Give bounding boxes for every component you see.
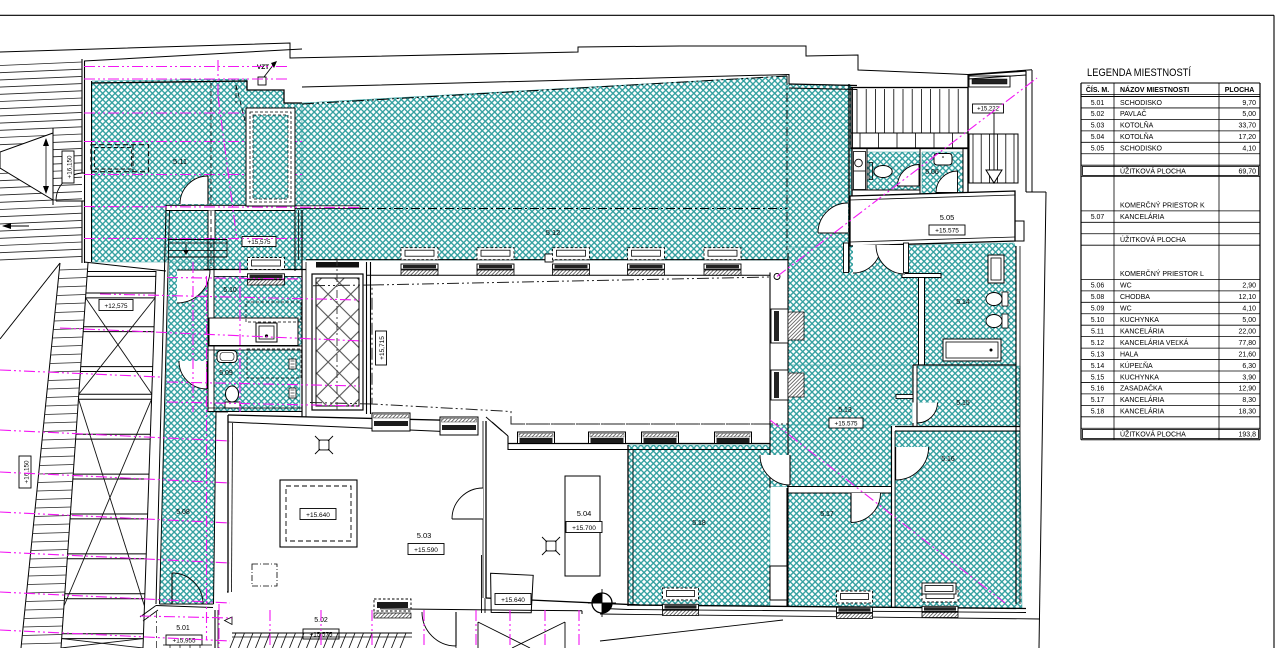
svg-text:5.16: 5.16	[1091, 386, 1105, 393]
svg-text:5.14: 5.14	[956, 299, 970, 306]
svg-text:5.05: 5.05	[1091, 146, 1105, 153]
svg-text:12,10: 12,10	[1238, 294, 1256, 301]
svg-text:KOMERČNÝ PRIESTOR K: KOMERČNÝ PRIESTOR K	[1120, 201, 1205, 210]
svg-text:+12,575: +12,575	[105, 303, 128, 310]
svg-text:+15,222: +15,222	[977, 106, 1000, 112]
svg-text:12,90: 12,90	[1238, 386, 1256, 393]
svg-text:193,8: 193,8	[1238, 432, 1256, 439]
svg-text:5.11: 5.11	[1091, 328, 1104, 335]
svg-text:ZASADAČKA: ZASADAČKA	[1120, 384, 1163, 393]
svg-text:+15.590: +15.590	[414, 547, 438, 554]
svg-text:+16,150: +16,150	[66, 155, 73, 178]
svg-text:+16,150: +16,150	[23, 460, 30, 483]
svg-text:+15.575: +15.575	[835, 420, 858, 427]
svg-text:+15.640: +15.640	[501, 597, 525, 604]
svg-text:LEGENDA MIESTNOSTÍ: LEGENDA MIESTNOSTÍ	[1087, 66, 1192, 79]
svg-text:3,90: 3,90	[1242, 374, 1256, 381]
svg-text:NÁZOV MIESTNOSTI: NÁZOV MIESTNOSTI	[1120, 85, 1189, 94]
svg-text:5.06: 5.06	[1091, 283, 1105, 290]
svg-text:5.14: 5.14	[1091, 363, 1105, 370]
svg-text:8,30: 8,30	[1242, 397, 1256, 404]
svg-text:ÚŽITKOVÁ PLOCHA: ÚŽITKOVÁ PLOCHA	[1120, 235, 1186, 244]
svg-text:+15.640: +15.640	[306, 512, 330, 519]
svg-text:HALA: HALA	[1120, 351, 1139, 358]
svg-text:5.13: 5.13	[838, 407, 852, 414]
svg-text:+15,715: +15,715	[379, 336, 386, 360]
svg-text:KÚPEĽŇA: KÚPEĽŇA	[1120, 361, 1153, 370]
svg-text:SCHODISKO: SCHODISKO	[1120, 100, 1163, 107]
svg-text:5.12: 5.12	[1091, 340, 1105, 347]
svg-text:5.17: 5.17	[820, 511, 834, 518]
svg-text:KANCELÁRIA: KANCELÁRIA	[1120, 407, 1165, 416]
svg-text:5.18: 5.18	[1091, 409, 1105, 416]
svg-text:5.18: 5.18	[692, 520, 706, 527]
svg-text:5.15: 5.15	[956, 400, 970, 407]
svg-text:5.02: 5.02	[1091, 111, 1105, 118]
svg-text:+15,575: +15,575	[248, 239, 271, 246]
svg-text:VZT: VZT	[257, 64, 269, 71]
svg-text:KUCHYNKA: KUCHYNKA	[1120, 317, 1159, 324]
svg-text:5.10: 5.10	[1091, 317, 1105, 324]
svg-text:CHODBA: CHODBA	[1120, 294, 1150, 301]
svg-text:5.16: 5.16	[941, 456, 955, 463]
svg-text:KOTOLŇA: KOTOLŇA	[1120, 121, 1154, 130]
svg-text:ČÍS. M.: ČÍS. M.	[1086, 85, 1109, 94]
svg-text:KANCELÁRIA: KANCELÁRIA	[1120, 326, 1165, 335]
svg-text:5.12: 5.12	[546, 228, 561, 237]
svg-text:5,00: 5,00	[1242, 111, 1256, 118]
svg-text:5.08: 5.08	[1091, 294, 1105, 301]
svg-text:77,80: 77,80	[1238, 340, 1256, 347]
svg-text:KANCELÁRIA: KANCELÁRIA	[1120, 395, 1165, 404]
svg-text:5.10: 5.10	[223, 287, 237, 294]
svg-text:+15.575: +15.575	[935, 227, 959, 234]
svg-text:2,90: 2,90	[1242, 283, 1256, 290]
svg-text:21,60: 21,60	[1238, 351, 1256, 358]
svg-text:SCHODISKO: SCHODISKO	[1120, 146, 1163, 153]
svg-text:KUCHYNKA: KUCHYNKA	[1120, 374, 1159, 381]
svg-text:18,30: 18,30	[1238, 409, 1256, 416]
svg-text:5.06: 5.06	[925, 169, 939, 176]
svg-text:5.04: 5.04	[1091, 134, 1105, 141]
svg-text:5.01: 5.01	[176, 625, 190, 632]
svg-text:KOTOLŇA: KOTOLŇA	[1120, 132, 1154, 141]
svg-text:5,00: 5,00	[1242, 317, 1256, 324]
svg-text:5.03: 5.03	[1091, 123, 1105, 130]
svg-text:33,70: 33,70	[1238, 123, 1256, 130]
svg-text:5.03: 5.03	[417, 531, 432, 540]
svg-text:5.11: 5.11	[173, 157, 187, 166]
svg-text:5.08: 5.08	[176, 509, 190, 516]
svg-text:WC: WC	[1120, 306, 1132, 313]
svg-text:KANCELÁRIA: KANCELÁRIA	[1120, 212, 1165, 221]
svg-text:69,70: 69,70	[1238, 168, 1256, 175]
svg-text:KOMERČNÝ PRIESTOR L: KOMERČNÝ PRIESTOR L	[1120, 269, 1204, 278]
svg-text:5.05: 5.05	[940, 213, 955, 222]
svg-text:WC: WC	[1120, 283, 1132, 290]
svg-text:22,00: 22,00	[1238, 328, 1256, 335]
svg-text:PAVLAČ: PAVLAČ	[1120, 109, 1147, 118]
svg-text:+15.700: +15.700	[572, 525, 596, 532]
svg-text:5.13: 5.13	[1091, 351, 1105, 358]
svg-text:6,30: 6,30	[1242, 363, 1256, 370]
svg-text:4,10: 4,10	[1242, 146, 1256, 153]
svg-text:ÚŽITKOVÁ PLOCHA: ÚŽITKOVÁ PLOCHA	[1120, 166, 1186, 175]
svg-text:5.15: 5.15	[1091, 374, 1105, 381]
svg-text:5.01: 5.01	[1091, 100, 1105, 107]
svg-text:9,70: 9,70	[1242, 100, 1256, 107]
svg-text:5.04: 5.04	[577, 509, 592, 518]
svg-text:5.09: 5.09	[1091, 306, 1105, 313]
svg-text:ÚŽITKOVÁ PLOCHA: ÚŽITKOVÁ PLOCHA	[1120, 430, 1186, 439]
svg-text:5.09: 5.09	[219, 370, 233, 377]
svg-text:KANCELÁRIA VEĽKÁ: KANCELÁRIA VEĽKÁ	[1120, 338, 1189, 347]
svg-text:4,10: 4,10	[1242, 306, 1256, 313]
svg-text:5.07: 5.07	[1091, 214, 1105, 221]
svg-text:5.17: 5.17	[1091, 397, 1105, 404]
svg-text:PLOCHA: PLOCHA	[1225, 87, 1255, 94]
svg-text:17,20: 17,20	[1238, 134, 1256, 141]
